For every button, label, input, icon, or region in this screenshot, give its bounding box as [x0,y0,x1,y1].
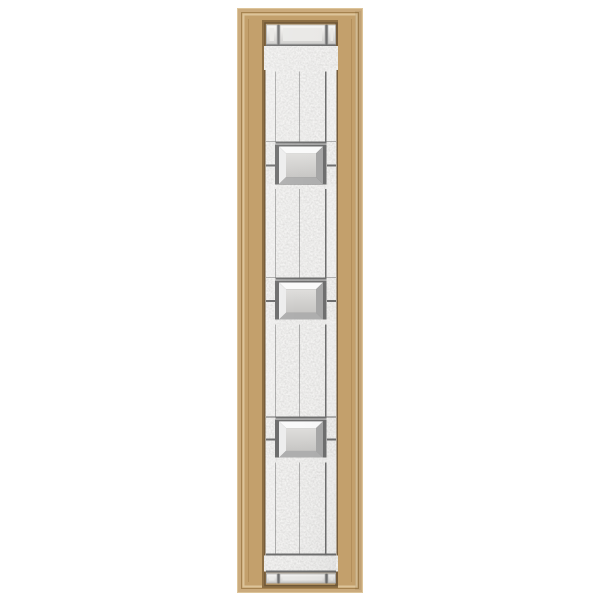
product-image [237,8,363,593]
sidelight-product [237,8,363,593]
product-photo-canvas [0,0,600,600]
frame-side-shading [355,11,361,590]
glass-sheen-highlight [266,24,336,584]
glass-insert [266,24,336,584]
